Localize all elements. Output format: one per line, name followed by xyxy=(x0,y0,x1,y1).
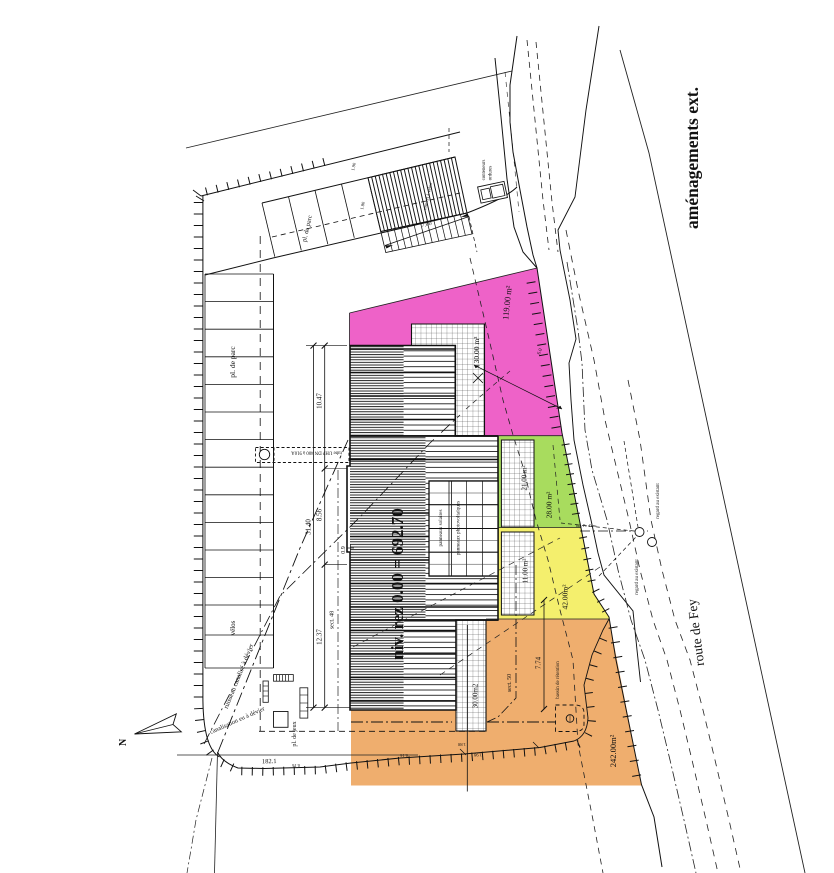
svg-text:vélos: vélos xyxy=(229,620,237,635)
svg-text:30.00m2: 30.00m2 xyxy=(472,683,480,708)
svg-text:0.16: 0.16 xyxy=(399,753,408,758)
svg-text:panneaux photovoltaïques: panneaux photovoltaïques xyxy=(456,501,462,555)
svg-text:N: N xyxy=(118,738,129,746)
svg-text:sect. 50: sect. 50 xyxy=(507,674,513,692)
svg-text:tub. Pe d'eau: tub. Pe d'eau xyxy=(576,523,596,528)
svg-text:conteneurs: conteneurs xyxy=(482,159,487,180)
svg-text:regard au existant: regard au existant xyxy=(635,559,640,595)
svg-text:ordures: ordures xyxy=(489,166,494,181)
svg-text:regard au existant: regard au existant xyxy=(656,483,661,519)
svg-text:bassin de rétention: bassin de rétention xyxy=(556,661,561,699)
svg-text:panneaux solaires: panneaux solaires xyxy=(438,509,444,546)
svg-text:pl. de jeux: pl. de jeux xyxy=(292,721,298,746)
svg-text:31.40: 31.40 xyxy=(305,519,313,535)
svg-text:7.74: 7.74 xyxy=(535,656,543,669)
svg-text:28.00 m²: 28.00 m² xyxy=(545,491,554,519)
svg-text:10.47: 10.47 xyxy=(316,393,324,409)
svg-text:21.00 m²: 21.00 m² xyxy=(521,465,529,490)
svg-text:242.00m²: 242.00m² xyxy=(608,734,618,767)
svg-text:niv. rez 0.00 = 692.70: niv. rez 0.00 = 692.70 xyxy=(388,508,407,660)
svg-text:sect. 48: sect. 48 xyxy=(330,611,336,629)
svg-text:pl. de parc: pl. de parc xyxy=(228,346,237,378)
svg-text:0.16: 0.16 xyxy=(291,763,300,768)
svg-text:1.98: 1.98 xyxy=(473,753,482,758)
svg-text:30.00 m²: 30.00 m² xyxy=(472,336,481,364)
svg-text:1.88: 1.88 xyxy=(457,742,466,747)
svg-text:182.1: 182.1 xyxy=(262,758,277,766)
svg-text:0.9: 0.9 xyxy=(341,546,347,554)
svg-text:aménagements ext.: aménagements ext. xyxy=(682,87,702,229)
svg-text:tube UHP DN 400 à 910A: tube UHP DN 400 à 910A xyxy=(291,450,342,455)
svg-text:12.37: 12.37 xyxy=(316,629,324,645)
svg-text:42.00m²: 42.00m² xyxy=(561,584,570,610)
svg-text:11.00 m²: 11.00 m² xyxy=(522,559,530,584)
